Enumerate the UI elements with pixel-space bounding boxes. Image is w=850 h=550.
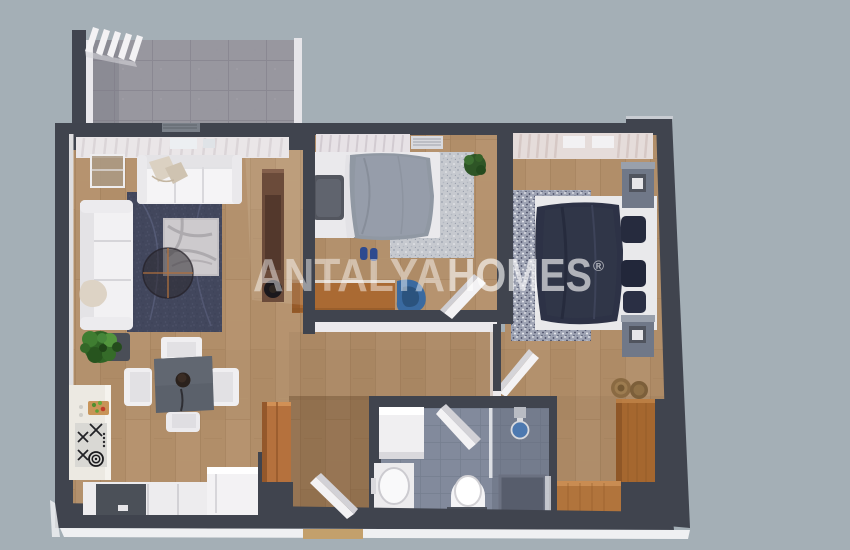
svg-text:ANTALYA: ANTALYA: [253, 249, 445, 301]
svg-text:®: ®: [593, 258, 604, 275]
svg-text:HOMES: HOMES: [447, 249, 592, 301]
